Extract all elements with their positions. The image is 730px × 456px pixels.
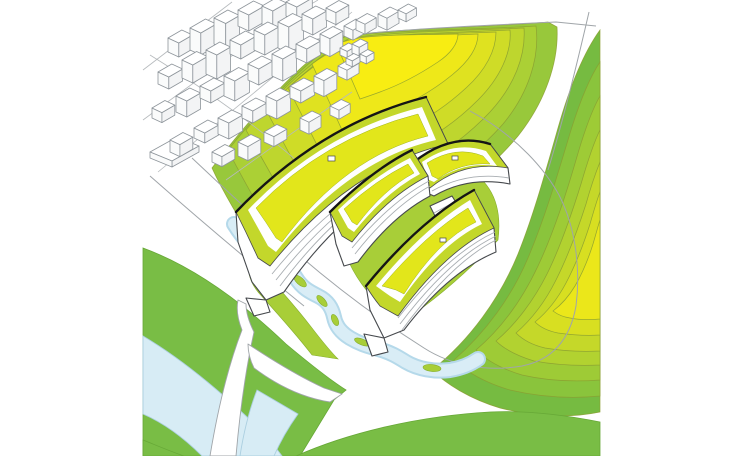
- town-house: [254, 22, 279, 55]
- town-house: [378, 7, 399, 30]
- town-house: [182, 52, 207, 84]
- town-house: [158, 64, 183, 89]
- rooftop-vent: [440, 238, 446, 242]
- illustration-canvas: [0, 0, 730, 456]
- town-house: [398, 4, 416, 22]
- town-house: [206, 42, 231, 79]
- town-house: [168, 30, 193, 57]
- rooftop-vent: [328, 156, 335, 161]
- town-house: [326, 1, 349, 25]
- town-house: [152, 101, 175, 123]
- town-house: [194, 120, 219, 143]
- rooftop-vent: [452, 156, 458, 160]
- town-house: [356, 14, 376, 35]
- park-south-strip: [296, 412, 600, 456]
- site-plan-svg: [0, 0, 730, 456]
- town-house: [200, 78, 225, 103]
- town-house: [176, 88, 201, 117]
